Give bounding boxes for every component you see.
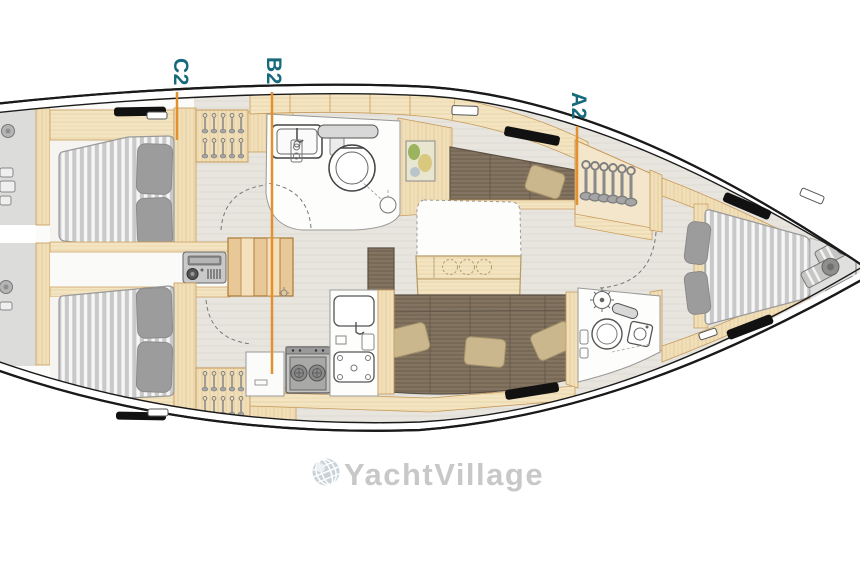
galley-cabinet: [246, 352, 284, 396]
transom-bulkhead: [36, 108, 50, 225]
headboard-locker: [174, 283, 196, 421]
nav-chart: [406, 141, 435, 181]
marker-a2-label: A2: [567, 92, 590, 120]
aft-cabin-upper: [50, 108, 196, 252]
radio-unit: [183, 252, 226, 283]
hatch-handle: [148, 409, 168, 416]
skylight: [452, 106, 478, 116]
sink-basin: [334, 296, 374, 326]
sink-basin: [334, 352, 374, 382]
watermark-text: YachtVillage: [344, 457, 544, 492]
galley-stove: [286, 347, 330, 393]
pillow: [684, 271, 712, 315]
marker-c2-label: C2: [169, 58, 192, 86]
companionway-steps: [228, 238, 293, 296]
watermark: YachtVillage: [308, 454, 544, 492]
pillow: [684, 221, 712, 265]
hatch-handle: [147, 112, 167, 119]
yacht-floor-plan: C2 B2 A2 YachtVillage: [0, 0, 860, 573]
pillow: [464, 336, 506, 367]
marker-b2-label: B2: [262, 57, 285, 85]
sink: [627, 321, 653, 347]
pillow: [136, 197, 173, 246]
pillow: [136, 143, 173, 194]
pillow: [136, 287, 173, 338]
table-folding-leaf: [417, 200, 521, 256]
head-aft: [266, 114, 400, 230]
globe-icon: [308, 454, 343, 489]
galley-sink-unit: [330, 290, 378, 396]
yacht-floor-plan-screenshot: C2 B2 A2 YachtVillage: [0, 0, 860, 573]
interior: [0, 80, 860, 440]
pillow: [136, 341, 173, 392]
